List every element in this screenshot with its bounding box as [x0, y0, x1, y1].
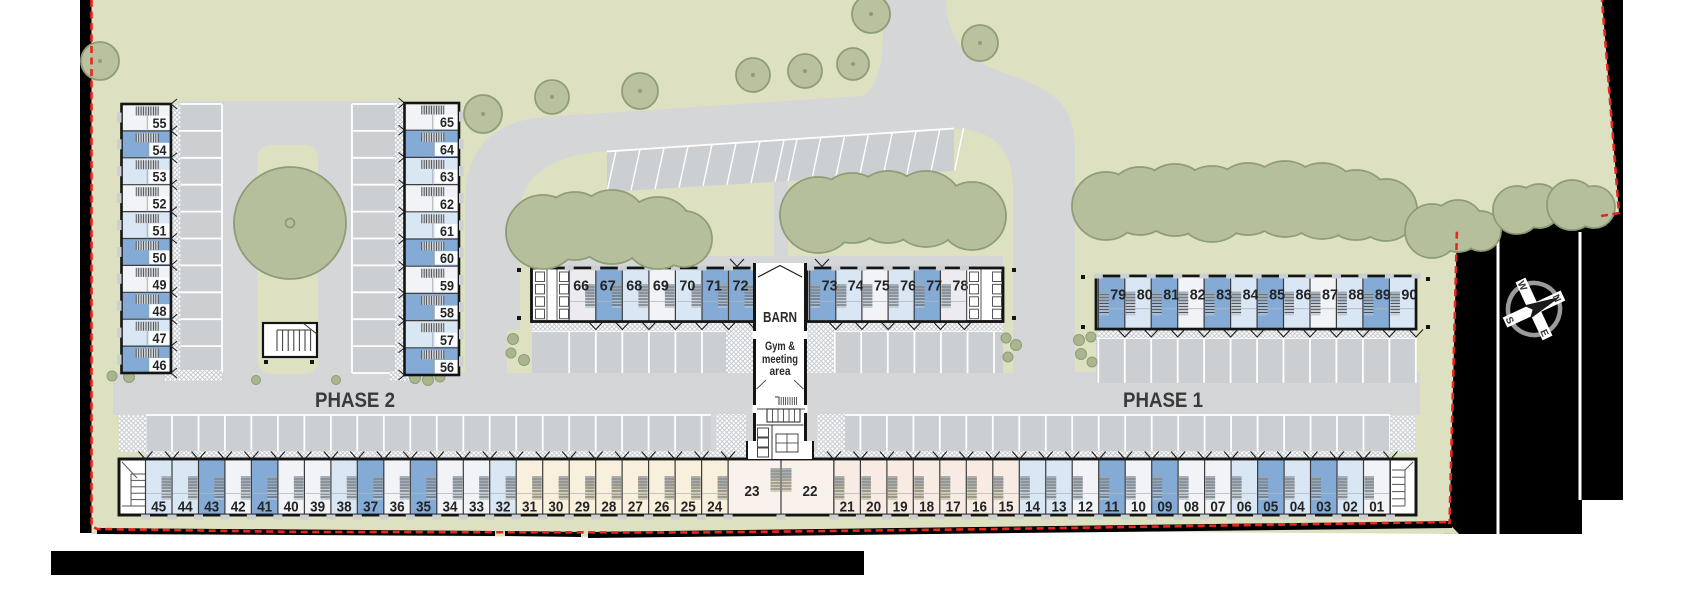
svg-text:54: 54: [153, 143, 167, 158]
svg-text:68: 68: [626, 279, 642, 295]
svg-text:69: 69: [653, 279, 669, 295]
svg-text:72: 72: [733, 279, 749, 295]
svg-text:58: 58: [440, 306, 454, 321]
svg-text:57: 57: [440, 333, 454, 348]
svg-text:50: 50: [153, 250, 167, 265]
svg-text:22: 22: [803, 484, 818, 500]
svg-text:59: 59: [440, 278, 454, 293]
svg-text:04: 04: [1290, 500, 1305, 516]
svg-text:area: area: [770, 364, 791, 378]
svg-text:46: 46: [153, 358, 167, 373]
svg-text:88: 88: [1348, 288, 1364, 304]
svg-text:76: 76: [900, 279, 916, 295]
svg-text:44: 44: [178, 500, 193, 516]
svg-text:70: 70: [679, 279, 695, 295]
svg-text:26: 26: [654, 500, 669, 516]
svg-text:24: 24: [707, 500, 722, 516]
svg-text:16: 16: [972, 500, 987, 516]
svg-text:35: 35: [416, 500, 431, 516]
svg-text:83: 83: [1216, 288, 1232, 304]
svg-text:28: 28: [601, 500, 616, 516]
svg-text:49: 49: [153, 277, 167, 292]
svg-text:74: 74: [848, 279, 864, 295]
svg-text:56: 56: [440, 360, 454, 375]
svg-text:Gym &: Gym &: [765, 339, 795, 353]
svg-text:05: 05: [1263, 500, 1278, 516]
svg-text:34: 34: [443, 500, 458, 516]
svg-text:65: 65: [440, 115, 454, 130]
svg-text:07: 07: [1210, 500, 1225, 516]
svg-text:20: 20: [866, 500, 881, 516]
svg-text:52: 52: [153, 197, 167, 212]
svg-text:31: 31: [522, 500, 537, 516]
svg-text:45: 45: [151, 500, 166, 516]
svg-text:75: 75: [874, 279, 890, 295]
svg-text:80: 80: [1137, 288, 1153, 304]
svg-text:09: 09: [1157, 500, 1172, 516]
svg-text:41: 41: [257, 500, 272, 516]
svg-text:82: 82: [1190, 288, 1206, 304]
svg-text:40: 40: [284, 500, 299, 516]
svg-text:62: 62: [440, 197, 454, 212]
svg-text:33: 33: [469, 500, 484, 516]
svg-text:10: 10: [1131, 500, 1146, 516]
svg-text:PHASE 2: PHASE 2: [315, 389, 395, 412]
svg-text:53: 53: [153, 170, 167, 185]
svg-text:29: 29: [575, 500, 590, 516]
svg-text:71: 71: [706, 279, 722, 295]
svg-text:67: 67: [600, 279, 616, 295]
svg-text:85: 85: [1269, 288, 1285, 304]
svg-text:43: 43: [204, 500, 219, 516]
svg-text:51: 51: [153, 224, 167, 239]
svg-text:36: 36: [390, 500, 405, 516]
svg-text:73: 73: [822, 279, 838, 295]
svg-text:86: 86: [1296, 288, 1312, 304]
svg-text:17: 17: [946, 500, 961, 516]
svg-text:25: 25: [681, 500, 696, 516]
svg-text:84: 84: [1243, 288, 1259, 304]
svg-text:63: 63: [440, 170, 454, 185]
svg-text:77: 77: [926, 279, 942, 295]
svg-text:61: 61: [440, 224, 454, 239]
svg-text:30: 30: [548, 500, 563, 516]
svg-text:38: 38: [337, 500, 352, 516]
svg-text:18: 18: [919, 500, 934, 516]
svg-text:14: 14: [1025, 500, 1040, 516]
svg-text:48: 48: [153, 304, 167, 319]
svg-text:19: 19: [893, 500, 908, 516]
svg-text:79: 79: [1110, 288, 1126, 304]
svg-text:47: 47: [153, 331, 167, 346]
svg-text:08: 08: [1184, 500, 1199, 516]
svg-text:01: 01: [1369, 500, 1384, 516]
svg-text:PHASE 1: PHASE 1: [1123, 389, 1203, 412]
svg-text:06: 06: [1237, 500, 1252, 516]
svg-text:55: 55: [153, 116, 167, 131]
svg-text:37: 37: [363, 500, 378, 516]
svg-text:23: 23: [745, 484, 760, 500]
svg-text:BARN: BARN: [763, 310, 797, 326]
svg-text:15: 15: [999, 500, 1014, 516]
svg-text:27: 27: [628, 500, 643, 516]
svg-text:02: 02: [1343, 500, 1358, 516]
svg-text:21: 21: [840, 500, 855, 516]
svg-text:32: 32: [496, 500, 511, 516]
svg-text:13: 13: [1052, 500, 1067, 516]
svg-text:12: 12: [1078, 500, 1093, 516]
svg-text:39: 39: [310, 500, 325, 516]
svg-text:81: 81: [1163, 288, 1179, 304]
svg-text:03: 03: [1316, 500, 1331, 516]
svg-text:89: 89: [1375, 288, 1391, 304]
svg-text:66: 66: [573, 279, 589, 295]
svg-text:87: 87: [1322, 288, 1338, 304]
svg-text:42: 42: [231, 500, 246, 516]
svg-text:64: 64: [440, 142, 454, 157]
svg-text:11: 11: [1104, 500, 1119, 516]
svg-text:60: 60: [440, 251, 454, 266]
